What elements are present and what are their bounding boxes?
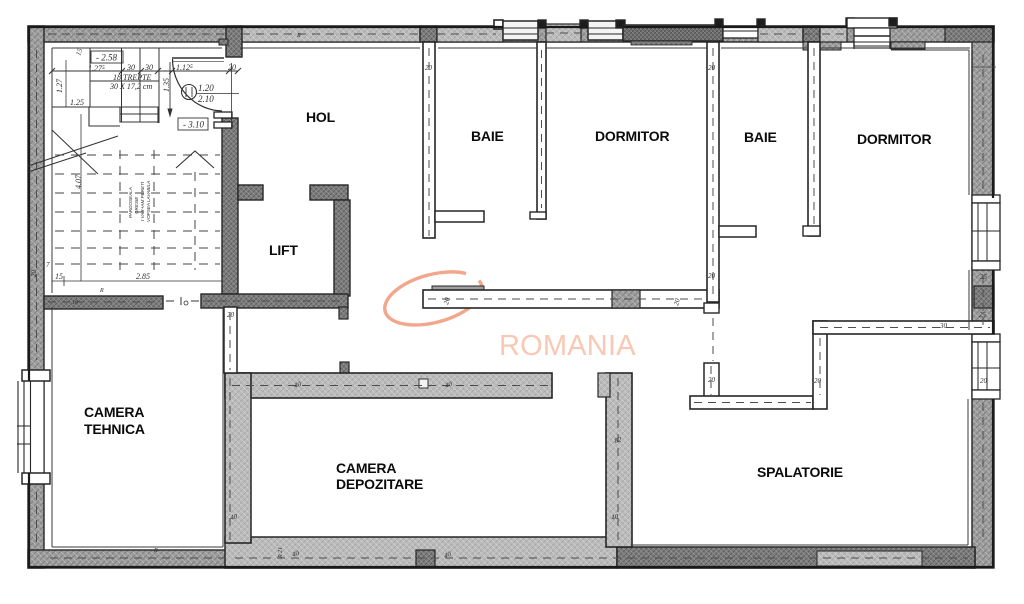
svg-text:15: 15 (55, 272, 63, 281)
svg-text:BAIE: BAIE (471, 128, 504, 144)
svg-text:25: 25 (979, 311, 987, 319)
svg-text:GRESIE: GRESIE (134, 196, 139, 214)
svg-text:18 TREPTE: 18 TREPTE (113, 73, 152, 82)
svg-text:ROMANIA: ROMANIA (499, 330, 636, 362)
svg-text:HOL: HOL (306, 109, 336, 125)
svg-text:2.10: 2.10 (198, 94, 214, 104)
svg-text:1.25: 1.25 (70, 98, 84, 107)
svg-text:1.12⁵: 1.12⁵ (176, 63, 193, 72)
svg-text:30: 30 (939, 322, 948, 330)
svg-text:LIFT: LIFT (269, 242, 298, 258)
svg-text:1.20: 1.20 (198, 83, 214, 93)
svg-text:4.07: 4.07 (74, 174, 83, 189)
svg-text:30: 30 (144, 63, 153, 72)
svg-text:7: 7 (46, 261, 50, 269)
svg-text:BAIE: BAIE (744, 129, 777, 145)
svg-text:SPALATORIE: SPALATORIE (757, 464, 843, 480)
svg-text:20: 20 (708, 64, 716, 72)
svg-text:20: 20 (814, 377, 822, 385)
svg-text:R: R (153, 548, 158, 554)
svg-text:R: R (99, 288, 104, 294)
svg-text:20: 20 (30, 270, 38, 278)
svg-text:30: 30 (126, 63, 135, 72)
svg-text:20: 20 (228, 63, 236, 72)
svg-text:20: 20 (980, 377, 988, 385)
svg-text:20: 20 (425, 64, 433, 72)
svg-text:2.85: 2.85 (136, 272, 150, 281)
svg-text:I VAR+AM PERETI: I VAR+AM PERETI (140, 181, 145, 221)
svg-text:1.35: 1.35 (162, 78, 171, 92)
svg-text:10: 10 (72, 300, 78, 306)
svg-text:30 X 17,2 cm: 30 X 17,2 cm (109, 82, 152, 91)
svg-text:TEHNICA: TEHNICA (84, 421, 145, 437)
svg-text:DORMITOR: DORMITOR (857, 131, 931, 147)
svg-text:1.27: 1.27 (55, 78, 64, 93)
svg-text:CAMERA: CAMERA (84, 404, 144, 420)
svg-text:DORMITOR: DORMITOR (595, 128, 669, 144)
svg-text:20: 20 (708, 376, 716, 384)
svg-text:- 2.58: - 2.58 (96, 53, 117, 63)
svg-text:20: 20 (708, 272, 716, 280)
svg-text:CAMERA: CAMERA (336, 460, 396, 476)
svg-text:20: 20 (227, 311, 235, 319)
svg-text:- 3.10: - 3.10 (183, 120, 204, 130)
svg-text:R 21: R 21 (278, 547, 284, 559)
svg-text:1.27⁵: 1.27⁵ (88, 64, 105, 73)
svg-text:PARDOSEALA: PARDOSEALA (128, 187, 133, 218)
svg-text:25: 25 (980, 273, 988, 281)
svg-text:R: R (296, 33, 301, 39)
svg-text:DEPOZITARE: DEPOZITARE (336, 476, 423, 492)
svg-text:VOPSEA LAVABILA: VOPSEA LAVABILA (146, 181, 151, 222)
